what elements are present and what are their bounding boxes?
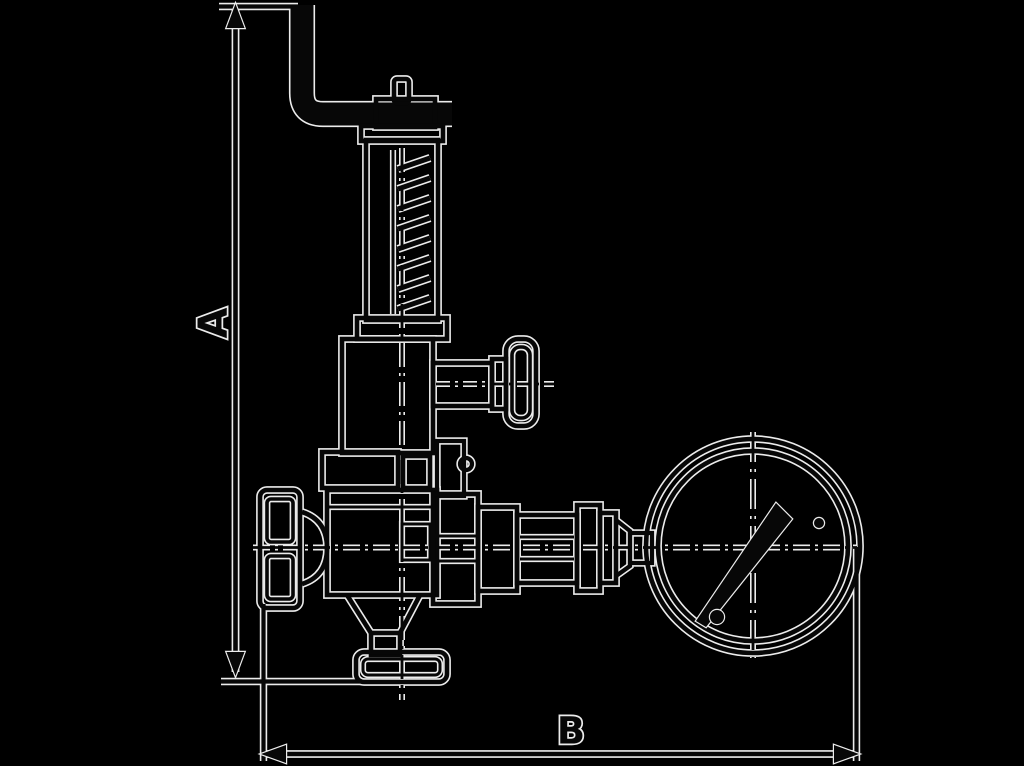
end-cap-slot-top: [267, 499, 293, 542]
body-flange: [322, 452, 398, 488]
valve-dimension-diagram: A B: [0, 0, 1024, 766]
upper-body: [342, 339, 433, 453]
safety-valve-group: [260, 5, 536, 682]
gauge-screw-left-icon: [710, 610, 724, 624]
end-cap-slot-bottom: [267, 556, 293, 599]
diagram-canvas: A B: [0, 0, 1024, 766]
gauge-needle: [696, 503, 792, 627]
body-flange-right-block: [403, 456, 430, 488]
dimension-a-label: A: [191, 307, 237, 338]
dimension-b-label: B: [557, 710, 585, 753]
upper-body: [342, 339, 433, 453]
end-cap-slot-bottom: [267, 556, 293, 599]
body-flange-right-block: [403, 456, 430, 488]
body-bore-slot: [402, 524, 430, 560]
outlet-cone-left: [347, 595, 371, 633]
dimension-a-arrow-down-icon: [227, 652, 245, 676]
end-cap-slot-top: [267, 499, 293, 542]
body-flange: [322, 452, 398, 488]
gauge-screw-right-icon: [814, 518, 824, 528]
body-bore-slot: [402, 524, 430, 560]
